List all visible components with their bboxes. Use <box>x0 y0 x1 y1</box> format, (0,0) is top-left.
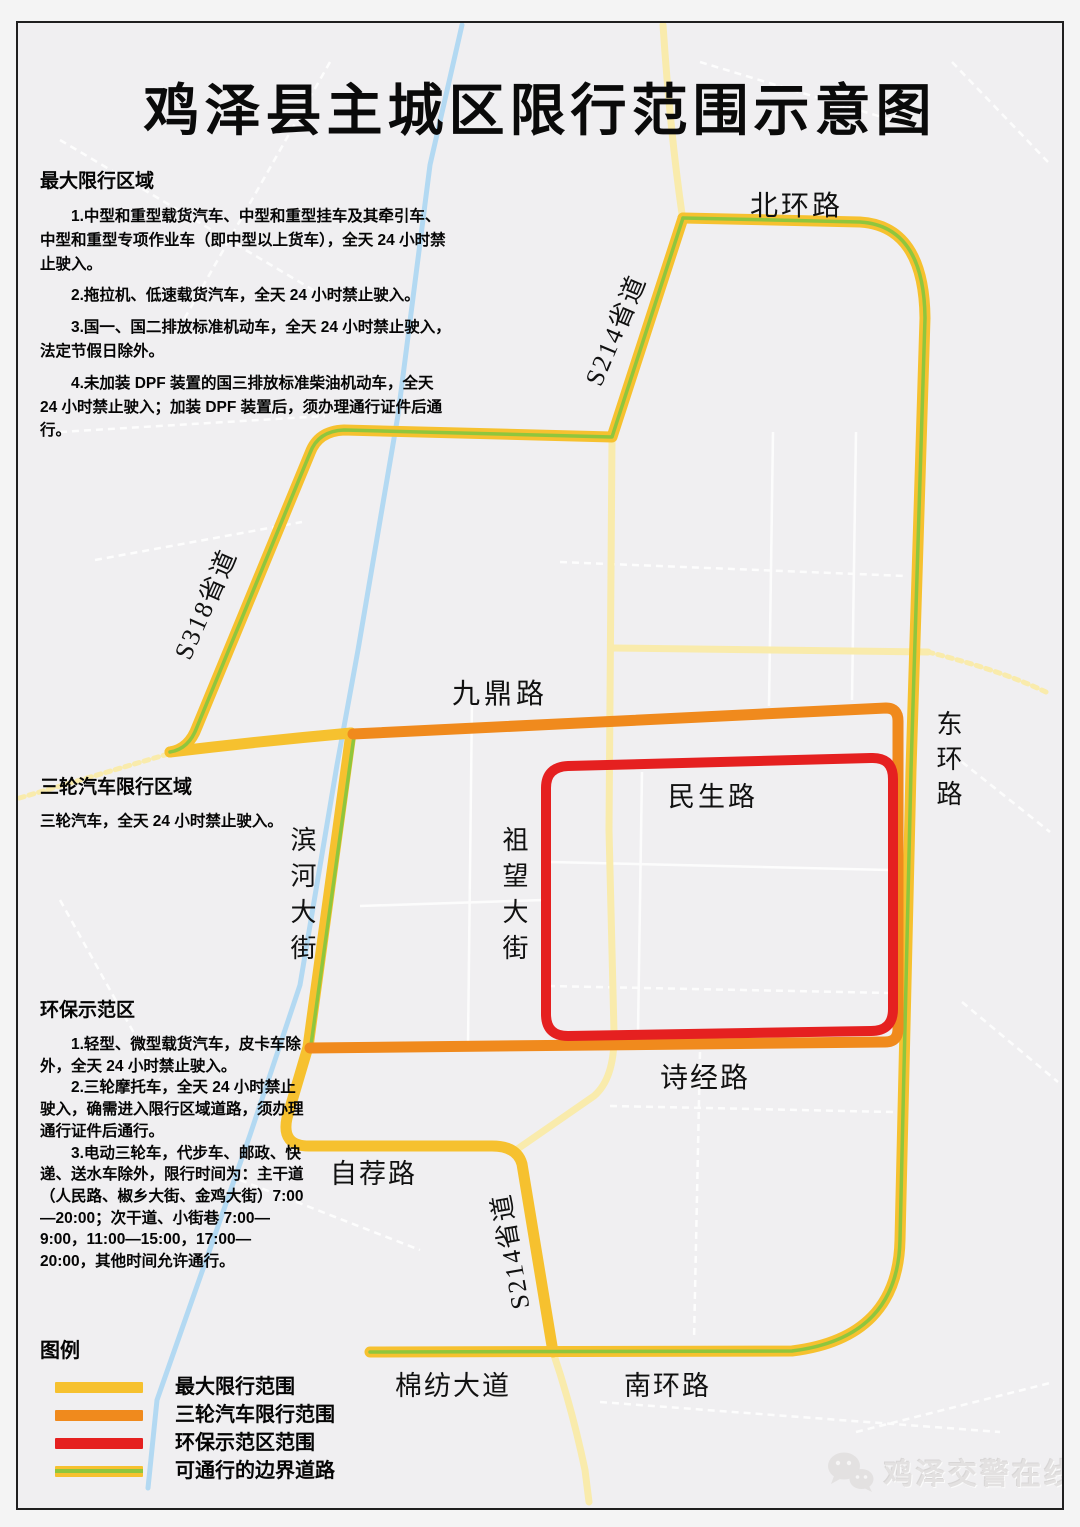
info-tricycle-zone: 三轮汽车限行区域 三轮汽车，全天 24 小时禁止驶入。 <box>40 772 340 833</box>
legend-row-tricycle: 三轮汽车限行范围 <box>40 1401 335 1429</box>
legend-row-max: 最大限行范围 <box>40 1373 335 1401</box>
road-label-zijian: 自荐路 <box>330 1152 417 1191</box>
road-pale-east-exit <box>928 652 1046 692</box>
rule-text: 2.三轮摩托车，全天 24 小时禁止驶入，确需进入限行区域道路，须办理通行证件后… <box>40 1077 304 1142</box>
legend-label: 三轮汽车限行范围 <box>175 1405 335 1425</box>
legend-label: 环保示范区范围 <box>175 1433 315 1453</box>
legend-row-eco: 环保示范区范围 <box>40 1429 335 1457</box>
legend-swatch-eco <box>55 1438 143 1449</box>
map-frame: 鸡泽县主城区限行范围示意图 最大限行区域 1.中型和重型载货汽车、中型和重型挂车… <box>16 21 1064 1510</box>
legend-row-boundary: 可通行的边界道路 <box>40 1457 335 1485</box>
road-s214-south-exit <box>553 1352 589 1502</box>
legend-title: 图例 <box>40 1334 335 1363</box>
watermark: 鸡泽交警在线 <box>826 1450 1064 1494</box>
road-label-south-ring: 南环路 <box>624 1364 711 1403</box>
road-renmin-pale <box>612 648 928 652</box>
section-heading: 三轮汽车限行区域 <box>40 772 340 799</box>
legend-label: 最大限行范围 <box>175 1377 295 1397</box>
wechat-icon <box>826 1450 876 1494</box>
rule-text: 4.未加装 DPF 装置的国三排放标准柴油机动车，全天 24 小时禁止驶入；加装… <box>40 372 452 443</box>
road-label-east-ring: 东环路 <box>929 710 966 815</box>
road-label-shijing: 诗经路 <box>660 1056 750 1096</box>
info-eco-zone: 环保示范区 1.轻型、微型载货汽车，皮卡车除外，全天 24 小时禁止驶入。 2.… <box>40 995 304 1273</box>
legend-swatch-boundary <box>55 1466 143 1477</box>
road-label-jiuding: 九鼎路 <box>452 672 548 712</box>
rule-text: 1.中型和重型载货汽车、中型和重型挂车及其牵引车、中型和重型专项作业车（即中型以… <box>40 205 452 276</box>
map-canvas: 鸡泽县主城区限行范围示意图 最大限行区域 1.中型和重型载货汽车、中型和重型挂车… <box>16 21 1064 1510</box>
legend: 图例 最大限行范围 三轮汽车限行范围 环保示范区范围 可通 <box>40 1334 335 1485</box>
rule-text: 1.轻型、微型载货汽车，皮卡车除外，全天 24 小时禁止驶入。 <box>40 1034 304 1077</box>
road-label-mianfang: 棉纺大道 <box>395 1364 511 1403</box>
road-label-north-ring: 北环路 <box>750 184 843 224</box>
road-boundary-ring-east <box>370 218 925 1352</box>
road-label-minsheng: 民生路 <box>668 775 758 814</box>
rule-text: 3.国一、国二排放标准机动车，全天 24 小时禁止驶入，法定节假日除外。 <box>40 316 452 364</box>
legend-swatch-boundary-core <box>55 1469 143 1473</box>
legend-swatch-tricycle <box>55 1410 143 1421</box>
green-core-east <box>370 218 925 1352</box>
section-heading: 环保示范区 <box>40 995 304 1022</box>
info-max-restriction-zone: 最大限行区域 1.中型和重型载货汽车、中型和重型挂车及其牵引车、中型和重型专项作… <box>40 166 452 443</box>
poster: 鸡泽县主城区限行范围示意图 最大限行区域 1.中型和重型载货汽车、中型和重型挂车… <box>0 0 1080 1527</box>
legend-label: 可通行的边界道路 <box>175 1461 335 1481</box>
road-label-binhe: 滨河大街 <box>283 826 320 970</box>
rule-text: 2.拖拉机、低速载货汽车，全天 24 小时禁止驶入。 <box>40 284 452 308</box>
road-label-zuwang: 祖望大街 <box>495 826 532 970</box>
rule-text: 3.电动三轮车，代步车、邮政、快递、送水车除外，限行时间为：主干道（人民路、椒乡… <box>40 1143 304 1273</box>
page-title: 鸡泽县主城区限行范围示意图 <box>16 66 1064 147</box>
section-heading: 最大限行区域 <box>40 166 452 193</box>
watermark-text: 鸡泽交警在线 <box>884 1451 1064 1493</box>
legend-swatch-max <box>55 1382 143 1393</box>
